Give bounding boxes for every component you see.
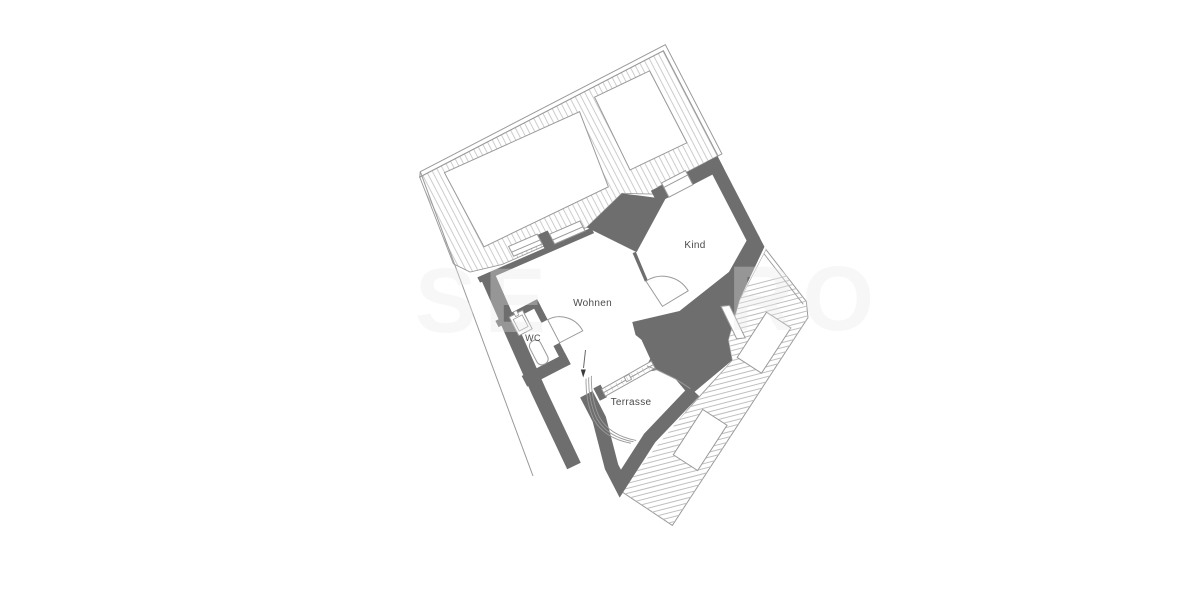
- svg-text:Terrasse: Terrasse: [611, 397, 652, 408]
- svg-text:Wohnen: Wohnen: [573, 298, 612, 309]
- svg-text:SE: SE: [415, 250, 554, 352]
- svg-text:RO: RO: [728, 248, 882, 350]
- svg-text:Kind: Kind: [684, 240, 705, 251]
